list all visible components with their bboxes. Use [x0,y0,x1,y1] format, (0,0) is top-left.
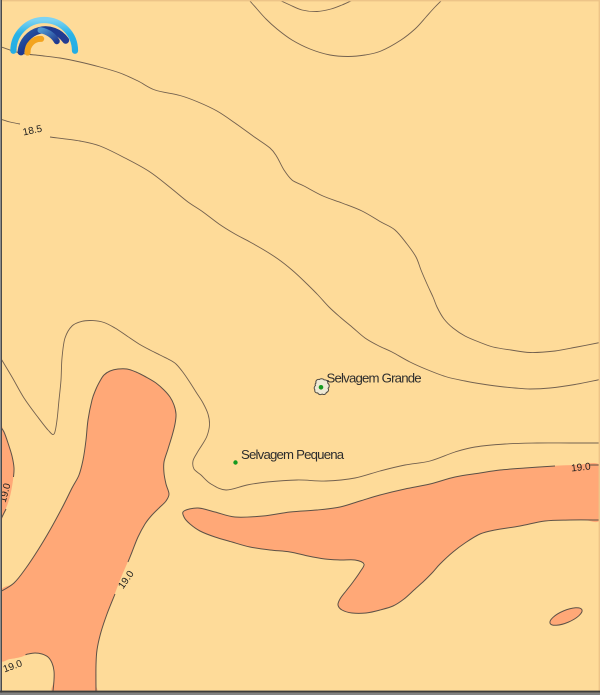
svg-text:Selvagem Grande: Selvagem Grande [327,371,422,386]
svg-text:19.0: 19.0 [571,461,592,474]
svg-text:Selvagem Pequena: Selvagem Pequena [241,447,345,462]
